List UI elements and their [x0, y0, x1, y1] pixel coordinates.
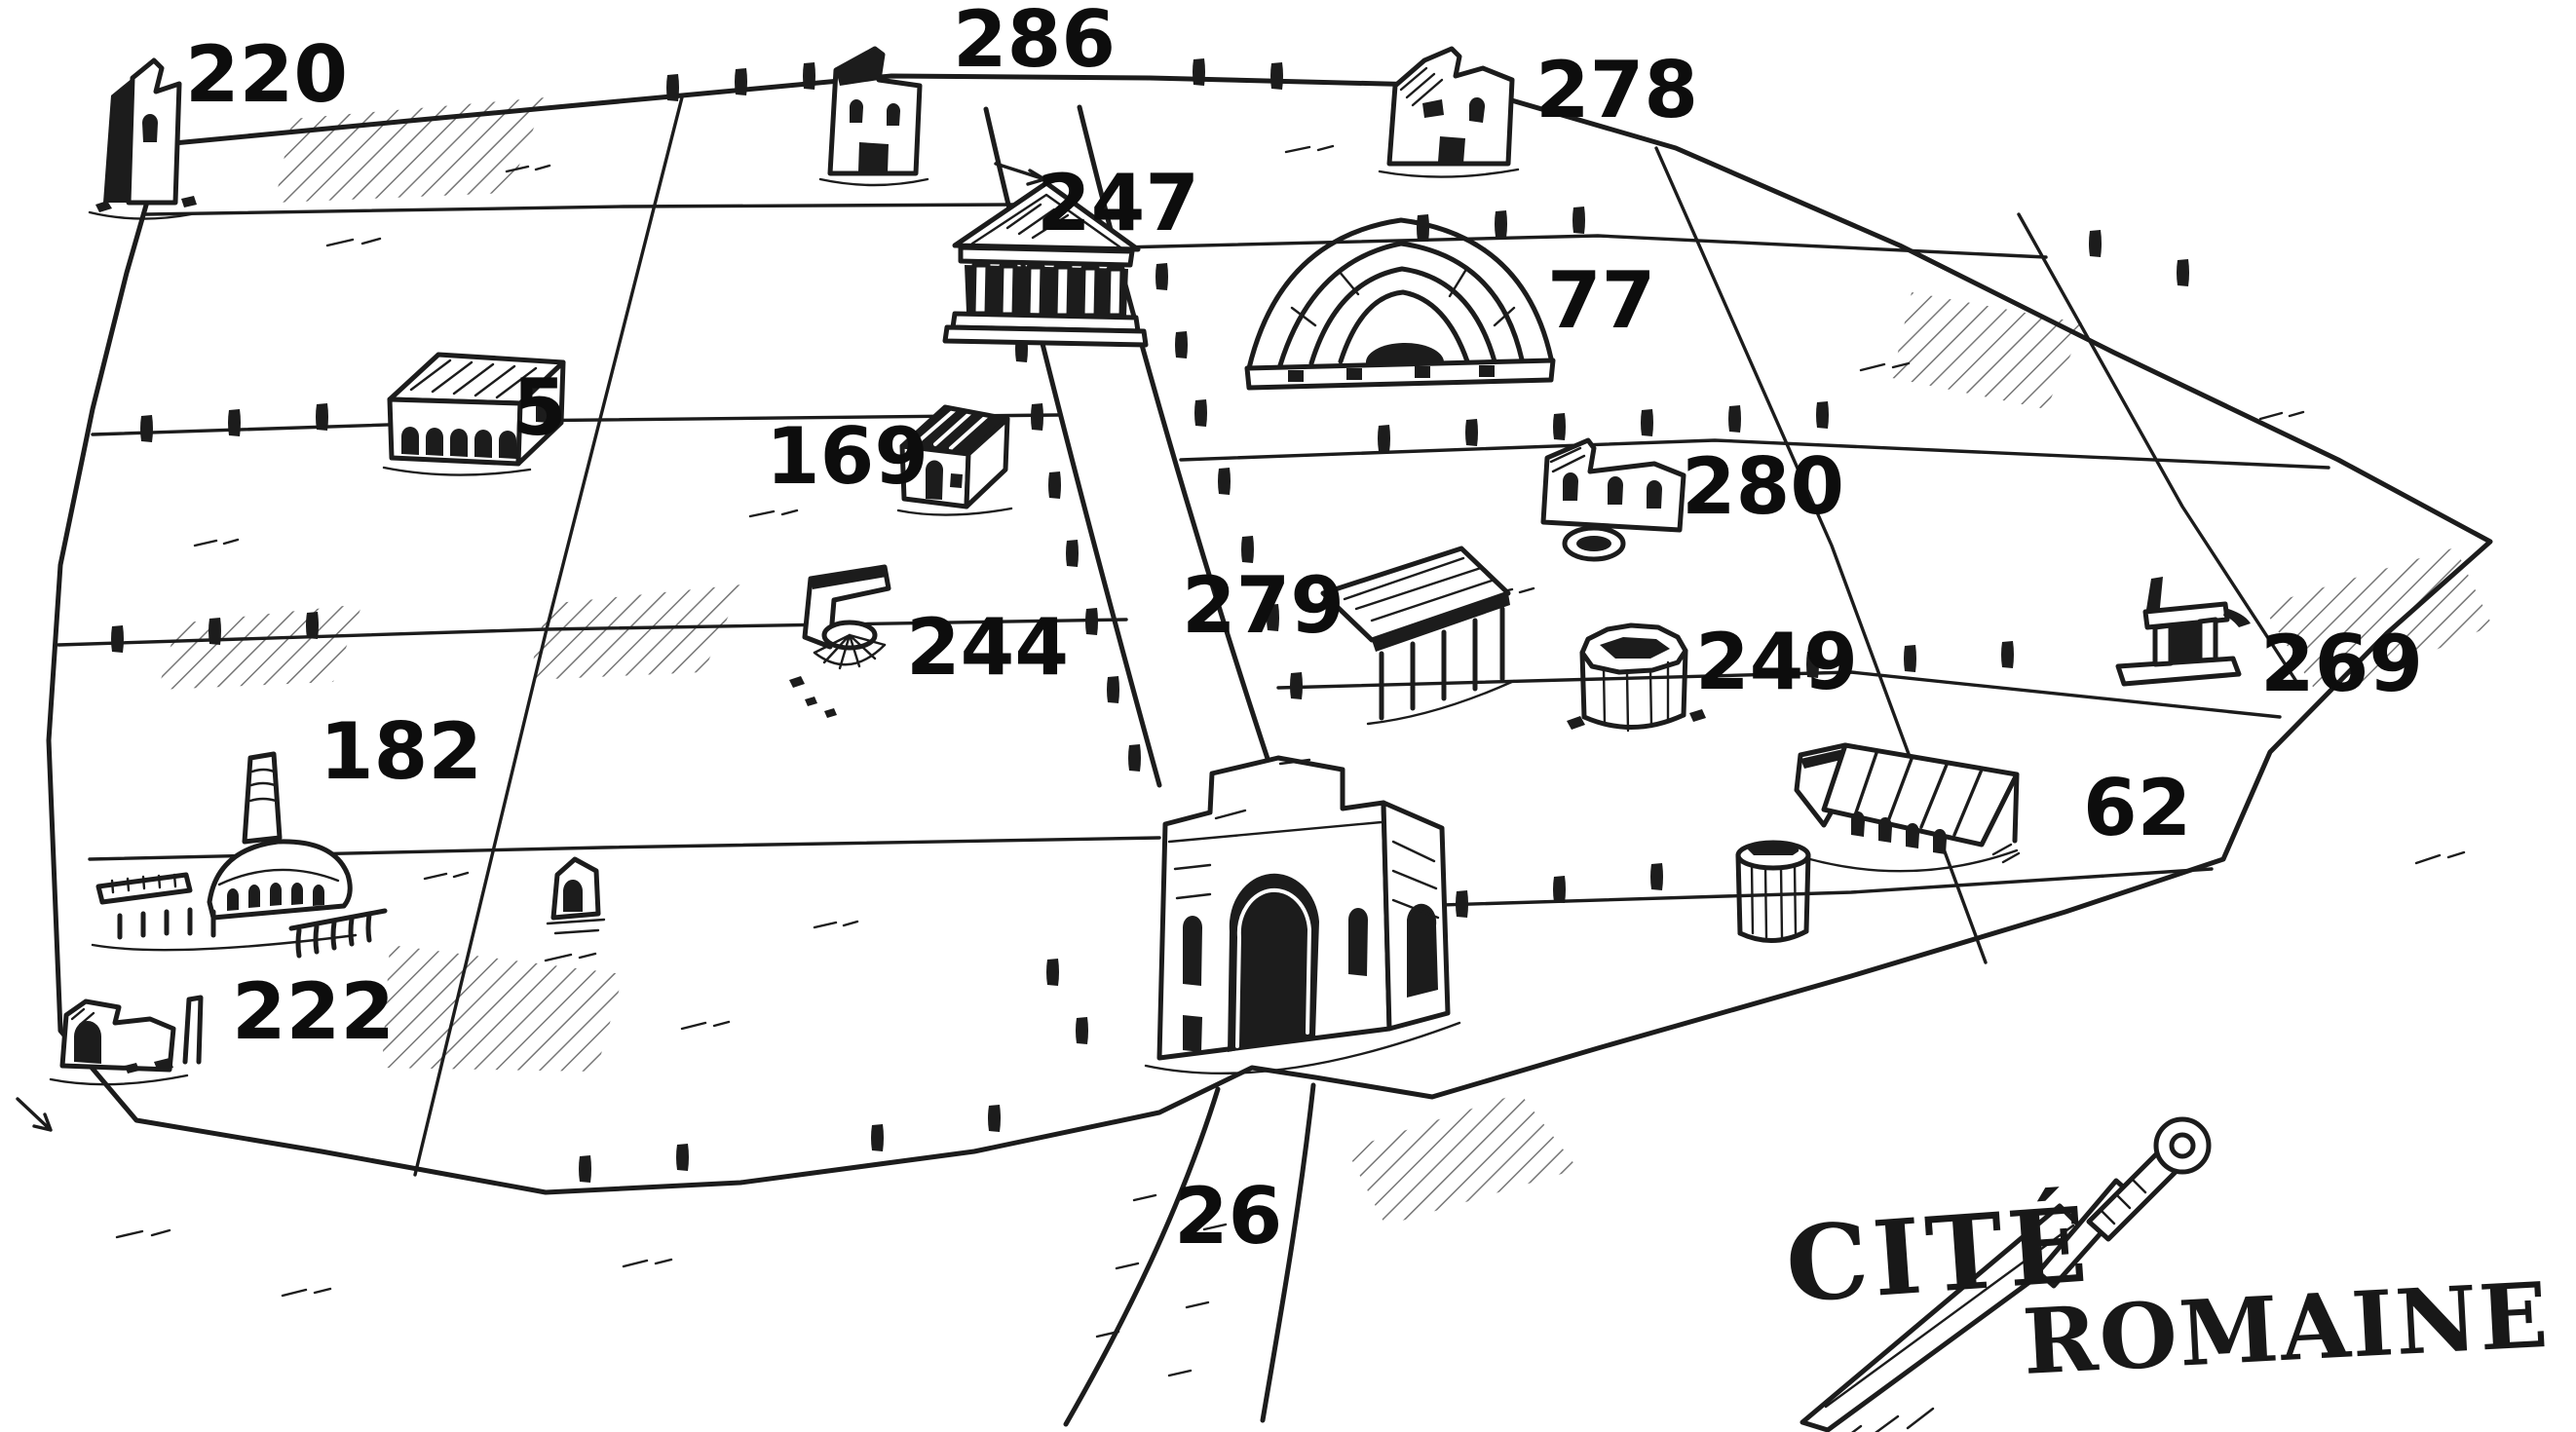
site-label-280: 280: [1682, 441, 1844, 532]
site-label-247: 247: [1037, 158, 1199, 248]
theater-icon: [1247, 220, 1553, 388]
city-gate-icon: [1146, 758, 1459, 1074]
collapsed-wall-icon: [789, 567, 889, 718]
map-title-line2: ROMAINE: [2020, 1262, 2552, 1395]
city-illustration: 220 286 278 247 77 5 169 280 279 244 249…: [0, 0, 2576, 1432]
baths-furnace-icon: [93, 754, 356, 950]
site-label-269: 269: [2260, 619, 2423, 709]
site-label-169: 169: [766, 411, 928, 502]
tall-ruin-icon: [820, 49, 928, 185]
niche-ruin-icon: [1543, 440, 1684, 559]
map-signature: CITÉ ROMAINE: [1782, 1119, 2552, 1432]
gabled-ruin-icon: [1380, 49, 1518, 177]
long-hall-icon: [1797, 745, 2019, 871]
site-label-26: 26: [1174, 1171, 1282, 1262]
site-label-77: 77: [1547, 255, 1655, 346]
site-label-220: 220: [185, 29, 348, 120]
site-label-62: 62: [2083, 763, 2191, 853]
arcade-ruin-icon: [291, 911, 385, 956]
site-label-5: 5: [512, 362, 567, 453]
roman-city-map: 220 286 278 247 77 5 169 280 279 244 249…: [0, 0, 2576, 1432]
site-label-279: 279: [1182, 560, 1345, 651]
site-label-286: 286: [953, 0, 1116, 85]
shrine-icon: [548, 859, 604, 933]
broken-tower-icon: [90, 60, 197, 219]
site-label-278: 278: [1535, 45, 1698, 135]
column-stump-icon: [1738, 843, 1808, 941]
site-label-222: 222: [232, 966, 395, 1057]
arch-grotto-icon: [51, 998, 201, 1084]
site-label-244: 244: [906, 602, 1069, 693]
site-label-249: 249: [1695, 617, 1858, 707]
site-label-182: 182: [320, 706, 482, 797]
column-ruin-icon: [2118, 577, 2251, 684]
hatched-ground-patches: [158, 97, 2492, 1225]
portico-ruin-icon: [1323, 548, 1514, 724]
